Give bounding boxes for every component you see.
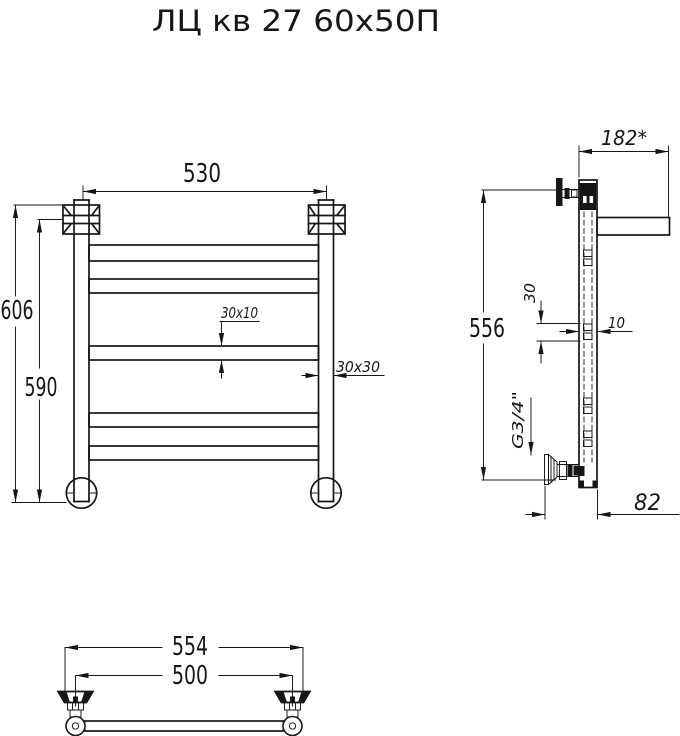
crossbar <box>89 346 319 360</box>
crossbar <box>89 413 319 427</box>
bottom-flange-left <box>58 692 93 736</box>
top-wall-flange <box>556 178 579 206</box>
drawing-canvas: ЛЦ кв 27 60х50П 530 606 590 <box>0 0 680 736</box>
bottom-flange-right <box>275 692 310 736</box>
crossbar-hidden-ends <box>584 250 593 447</box>
wall-bracket-left <box>62 205 100 234</box>
dim-bottom-width-overall: 554 <box>172 632 208 662</box>
callout-thread: G3/4" <box>509 391 531 455</box>
post-right <box>319 200 334 502</box>
dim-crossbar-thickness: 10 <box>560 314 632 332</box>
shelf-bar <box>597 218 670 236</box>
post-side-profile <box>579 180 597 488</box>
dim-side-crossbar-thickness: 10 <box>608 314 625 332</box>
dim-bottom-offset: 82 <box>526 486 679 519</box>
label-crossbar-section: 30x10 <box>221 304 258 322</box>
bottom-view: 554 500 <box>58 632 310 736</box>
dim-front-width: 530 <box>183 159 221 189</box>
wall-bracket-right <box>308 205 346 234</box>
dim-crossbar-height: 30 <box>521 283 580 363</box>
dim-bottom-mount-centers: 500 <box>172 661 208 691</box>
drawing-title: ЛЦ кв 27 60х50П <box>152 4 440 38</box>
dim-front-height-mounts: 590 <box>25 373 58 403</box>
crossbar <box>89 279 319 293</box>
label-post-section: 30x30 <box>336 358 380 376</box>
dim-side-crossbar-height: 30 <box>521 283 539 303</box>
callout-crossbar-section: 30x10 <box>220 304 259 378</box>
bottom-bar <box>85 721 284 731</box>
label-thread-size: G3/4" <box>509 391 527 449</box>
dim-side-mount-height: 556 <box>469 314 505 344</box>
bottom-wall-connector <box>545 455 598 488</box>
bottom-mount-left <box>66 478 96 508</box>
front-view: 530 606 590 <box>1 159 385 508</box>
technical-drawing-page: ЛЦ кв 27 60х50П 530 606 590 <box>0 0 680 736</box>
crossbar <box>89 446 319 460</box>
dim-front-height-overall: 606 <box>1 296 34 326</box>
bottom-mount-right <box>311 478 341 508</box>
side-view: 182* <box>469 126 679 519</box>
dim-side-bottom-offset: 82 <box>634 491 661 516</box>
crossbar <box>89 245 319 261</box>
dim-side-shelf-depth: 182* <box>601 126 647 150</box>
post-left <box>74 200 89 502</box>
